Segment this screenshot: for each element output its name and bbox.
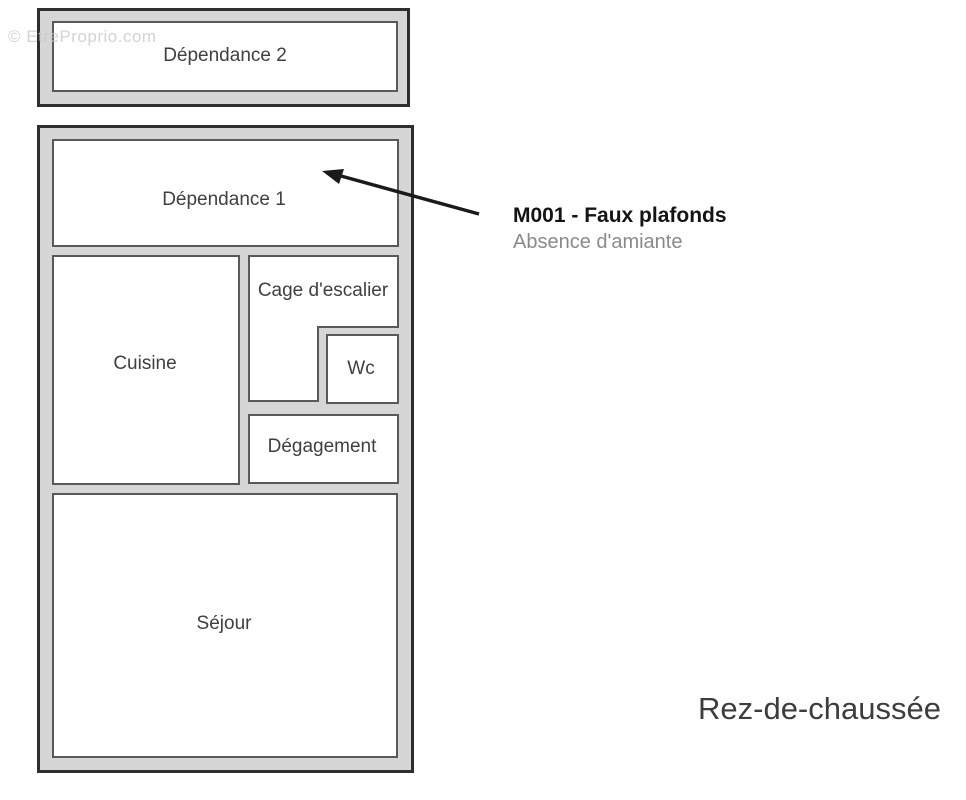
- floor-title: Rez-de-chaussée: [698, 691, 941, 727]
- room-label-wc: Wc: [347, 358, 374, 380]
- annotation-block: M001 - Faux plafonds Absence d'amiante: [513, 202, 727, 255]
- watermark: © EtreProprio.com: [8, 27, 157, 47]
- room-label-cuisine: Cuisine: [113, 353, 176, 375]
- room-label-degagement: Dégagement: [268, 436, 377, 458]
- room-label-dependance-1: Dépendance 1: [162, 189, 286, 211]
- floor-plan-page: © EtreProprio.com Dépendance 2 Dépendanc…: [0, 0, 966, 800]
- room-label-dependance-2: Dépendance 2: [163, 45, 287, 67]
- annotation-detail: Absence d'amiante: [513, 229, 727, 255]
- annotation-title: M001 - Faux plafonds: [513, 202, 727, 229]
- room-label-cage-escalier: Cage d'escalier: [258, 280, 388, 302]
- room-label-sejour: Séjour: [197, 613, 252, 635]
